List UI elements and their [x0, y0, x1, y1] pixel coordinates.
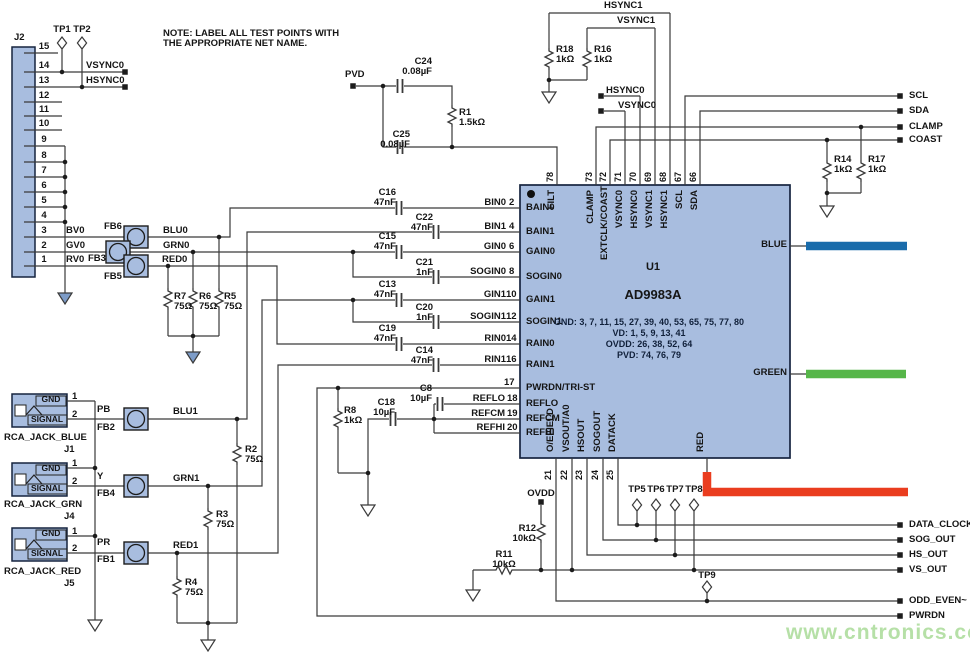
j2-pin-5: 5: [36, 196, 52, 206]
jack1-ref: J1: [64, 445, 75, 455]
label-R7: R775Ω: [174, 292, 192, 312]
net-red0: RED0: [162, 255, 187, 265]
chip-pin-extclk: EXTCLK/COAST: [600, 190, 610, 260]
net-ovdd: OVDD: [524, 489, 558, 499]
jack3-gnd: GND: [36, 529, 66, 538]
pin-70: 70: [628, 142, 638, 182]
chip-pin-hsync1: HSYNC1: [660, 190, 670, 260]
pin-17: 17: [504, 378, 515, 388]
chip-pin-vsync1: VSYNC1: [645, 190, 655, 260]
pin-10: 10: [506, 290, 517, 300]
ground-vga-terminations: [186, 352, 200, 363]
net-grn1: GRN1: [173, 474, 199, 484]
net-coast: COAST: [909, 135, 942, 145]
chip-pin1-dot: [527, 190, 535, 198]
label-C19: C1947nF: [374, 324, 396, 344]
net-bin1: BIN1: [446, 222, 506, 232]
jack1-pin1: 1: [72, 392, 77, 402]
resistor-R7: [164, 288, 172, 310]
pin-2: 2: [509, 198, 514, 208]
label-R1: R11.5kΩ: [459, 108, 485, 128]
capacitor-C13: [397, 293, 402, 307]
label-C15: C1547nF: [374, 232, 396, 252]
capacitor-C19: [397, 337, 402, 351]
testpoint-TP2: [77, 37, 86, 49]
label-R5: R575Ω: [224, 292, 242, 312]
jack2-gnd: GND: [36, 464, 66, 473]
chip-partnumber: AD9983A: [597, 288, 709, 302]
chip-label-red: RED: [696, 382, 706, 452]
net-bv0: BV0: [66, 226, 84, 236]
net-refcm: REFCM: [445, 409, 505, 419]
chip-label-green: GREEN: [727, 368, 787, 378]
label-C8: C810µF: [410, 384, 432, 404]
net-blu1: BLU1: [173, 407, 198, 417]
jack3-name: RCA_JACK_RED: [4, 567, 81, 577]
testpoint-TP1: [57, 37, 66, 49]
jack3-signal: SIGNAL: [28, 549, 66, 558]
ferrite-bead-FB4: [124, 475, 148, 497]
fb1-label: FB1: [97, 555, 115, 565]
ground-ref: [361, 505, 375, 516]
jack3-ref: J5: [64, 579, 75, 589]
tp5-label: TP5: [628, 485, 646, 495]
watermark: www.cntronics.com: [786, 622, 970, 644]
net-hsync0-top: HSYNC0: [606, 86, 645, 96]
j2-pin-14: 14: [36, 61, 52, 71]
label-C16: C1647nF: [374, 188, 396, 208]
j2-pin-12: 12: [36, 91, 52, 101]
fb5-label: FB5: [104, 272, 122, 282]
capacitor-C16: [397, 201, 402, 215]
resistor-R8: [334, 408, 342, 430]
label-R6: R675Ω: [199, 292, 217, 312]
net-blu0: BLU0: [163, 226, 188, 236]
net-hs-out: HS_OUT: [909, 550, 948, 560]
label-R12: R1210kΩ: [513, 524, 536, 544]
net-hsync1: HSYNC1: [604, 1, 643, 11]
resistor-R2: [233, 443, 241, 465]
pin-73: 73: [584, 142, 594, 182]
label-C18: C1810µF: [373, 398, 395, 418]
label-R17: R171kΩ: [868, 155, 886, 175]
pin-22: 22: [559, 440, 569, 480]
net-pvd: PVD: [345, 70, 365, 80]
pin-25: 25: [605, 440, 615, 480]
j2-pin-10: 10: [36, 119, 52, 129]
ground-clamp-coast: [820, 206, 834, 217]
j2-pin-3: 3: [36, 226, 52, 236]
resistor-R17: [857, 160, 865, 182]
fb6-label: FB6: [104, 222, 122, 232]
pin-18: 18: [507, 394, 518, 404]
capacitor-C14: [434, 358, 439, 372]
testpoint-TP8: [689, 499, 698, 511]
ground-rca-shells: [88, 620, 102, 631]
red-video-bar: [707, 472, 908, 492]
label-C13: C1347nF: [374, 280, 396, 300]
label-R11: R1110kΩ: [490, 550, 518, 570]
resistor-R16: [583, 48, 591, 70]
pin-24: 24: [590, 440, 600, 480]
net-rin0: RIN0: [446, 334, 506, 344]
net-rin1: RIN1: [446, 355, 506, 365]
jack2-ref: J4: [64, 512, 75, 522]
jack1-pin2: 2: [72, 410, 77, 420]
j2-pin-8: 8: [36, 151, 52, 161]
j2-pin-13: 13: [36, 76, 52, 86]
net-sda: SDA: [909, 106, 929, 116]
jack1-name: RCA_JACK_BLUE: [4, 433, 87, 443]
chip-pin-hsync0: HSYNC0: [630, 190, 640, 260]
net-grn0: GRN0: [163, 241, 189, 251]
testpoint-TP5: [632, 499, 641, 511]
jack2-name: RCA_JACK_GRN: [4, 500, 82, 510]
resistor-R12: [537, 521, 545, 543]
pin-20: 20: [507, 423, 518, 433]
chip-pin-vsync0: VSYNC0: [615, 190, 625, 260]
pin-21: 21: [543, 440, 553, 480]
label-R8: R81kΩ: [344, 406, 362, 426]
label-R3: R375Ω: [216, 510, 234, 530]
pin-66: 66: [688, 142, 698, 182]
j2-pin-15: 15: [36, 42, 52, 52]
j2-pin-4: 4: [36, 211, 52, 221]
j2-pin-9: 9: [36, 135, 52, 145]
note-line2: THE APPROPRIATE NET NAME.: [163, 39, 307, 49]
net-refhi: REFHI: [445, 423, 505, 433]
net-pb: PB: [97, 405, 110, 415]
pin-14: 14: [506, 334, 517, 344]
net-sogin0: SOGIN0: [446, 267, 506, 277]
capacitor-C24: [398, 79, 403, 93]
jack3-pin2: 2: [72, 544, 77, 554]
capacitor-C22: [434, 225, 439, 239]
pin-23: 23: [574, 440, 584, 480]
chip-label-blue: BLUE: [727, 240, 787, 250]
label-C14: C1447nF: [411, 346, 433, 366]
pin-78: 78: [545, 142, 555, 182]
pin-69: 69: [643, 142, 653, 182]
chip-pin-scl: SCL: [675, 190, 685, 260]
net-sog-out: SOG_OUT: [909, 535, 955, 545]
net-reflo: REFLO: [445, 394, 505, 404]
chip-pin-rain1: RAIN1: [526, 360, 555, 370]
net-vsync1: VSYNC1: [617, 16, 655, 26]
tp8-label: TP8: [685, 485, 703, 495]
testpoint-TP7: [670, 499, 679, 511]
chip-pin-gain1: GAIN1: [526, 295, 555, 305]
label-R14: R141kΩ: [834, 155, 852, 175]
net-gv0: GV0: [66, 241, 85, 251]
chip-power-notes: GND: 3, 7, 11, 15, 27, 39, 40, 53, 65, 7…: [543, 317, 755, 361]
chip-pin-sda: SDA: [690, 190, 700, 260]
ferrite-bead-FB2: [124, 408, 148, 430]
pin-6: 6: [509, 242, 514, 252]
label-C25: C250.08µF: [380, 130, 410, 150]
label-R2: R275Ω: [245, 445, 263, 465]
testpoint-TP6: [651, 499, 660, 511]
tp9-label: TP9: [698, 571, 716, 581]
resistor-R4: [173, 576, 181, 598]
tp2-label: TP2: [71, 25, 93, 35]
net-data-clock: DATA_CLOCK: [909, 520, 970, 530]
net-vsync0-top: VSYNC0: [618, 101, 656, 111]
resistor-R1: [448, 105, 456, 127]
net-gin1: GIN1: [446, 290, 506, 300]
capacitor-C8: [438, 397, 443, 411]
chip-pin-clamp: CLAMP: [586, 190, 596, 260]
net-rv0: RV0: [66, 255, 84, 265]
label-R4: R475Ω: [185, 578, 203, 598]
testpoint-TP9: [702, 581, 711, 593]
label-C21: C211nF: [416, 258, 433, 278]
label-R18: R181kΩ: [556, 45, 574, 65]
net-scl: SCL: [909, 91, 928, 101]
jack1-signal: SIGNAL: [28, 415, 66, 424]
label-C22: C2247nF: [411, 213, 433, 233]
fb2-label: FB2: [97, 423, 115, 433]
net-gin0: GIN0: [446, 242, 506, 252]
jack2-pin1: 1: [72, 459, 77, 469]
capacitor-C20: [434, 315, 439, 329]
schematic-page: NOTE: LABEL ALL TEST POINTS WITH THE APP…: [0, 0, 970, 656]
jack2-pin2: 2: [72, 477, 77, 487]
ground-rca-terminations: [201, 640, 215, 651]
pin-8: 8: [509, 267, 514, 277]
jack3-pin1: 1: [72, 527, 77, 537]
fb3-label: FB3: [88, 254, 106, 264]
ground-r11: [466, 590, 480, 601]
label-C20: C201nF: [416, 303, 433, 323]
ground-sync-pullups: [542, 92, 556, 103]
net-odd-even: ODD_EVEN~: [909, 596, 967, 606]
j2-pin-1: 1: [36, 255, 52, 265]
chip-pin-filt: FILT: [547, 190, 557, 260]
pin-19: 19: [507, 409, 518, 419]
jack1-gnd: GND: [36, 395, 66, 404]
pin-12: 12: [506, 312, 517, 322]
net-vsync0-left: VSYNC0: [86, 61, 124, 71]
net-pwrdn: PWRDN: [909, 611, 945, 621]
net-bin0: BIN0: [446, 198, 506, 208]
j2-pin-2: 2: [36, 241, 52, 251]
net-hsync0-left: HSYNC0: [86, 76, 125, 86]
resistor-R3: [204, 508, 212, 530]
net-clamp: CLAMP: [909, 122, 943, 132]
j2-pin-11: 11: [36, 105, 52, 115]
net-sogin1: SOGIN1: [446, 312, 506, 322]
j2-pin-6: 6: [36, 181, 52, 191]
ferrite-bead-FB1: [124, 542, 148, 564]
chip-refdes: U1: [628, 261, 678, 273]
pin-72: 72: [598, 142, 608, 182]
capacitor-C21: [434, 270, 439, 284]
jack2-signal: SIGNAL: [28, 484, 66, 493]
tp1-label: TP1: [51, 25, 73, 35]
j2-refdes: J2: [14, 33, 25, 43]
label-R16: R161kΩ: [594, 45, 612, 65]
pin-68: 68: [658, 142, 668, 182]
net-vs-out: VS_OUT: [909, 565, 947, 575]
net-red1: RED1: [173, 541, 198, 551]
capacitor-C15: [397, 245, 402, 259]
fb4-label: FB4: [97, 489, 115, 499]
pin-67: 67: [673, 142, 683, 182]
net-pr: PR: [97, 538, 110, 548]
net-y: Y: [97, 472, 103, 482]
schematic-graphics: [0, 0, 970, 656]
tp6-label: TP6: [647, 485, 665, 495]
resistor-R18: [545, 48, 553, 70]
pin-71: 71: [613, 142, 623, 182]
j2-pin-7: 7: [36, 166, 52, 176]
ferrite-bead-FB5: [124, 255, 148, 277]
resistor-R14: [823, 160, 831, 182]
pin-4: 4: [509, 222, 514, 232]
tp7-label: TP7: [666, 485, 684, 495]
chip-pin-sogin0: SOGIN0: [526, 272, 562, 282]
pin-16: 16: [506, 355, 517, 365]
label-C24: C240.08µF: [402, 57, 432, 77]
ground-j2: [58, 293, 72, 304]
